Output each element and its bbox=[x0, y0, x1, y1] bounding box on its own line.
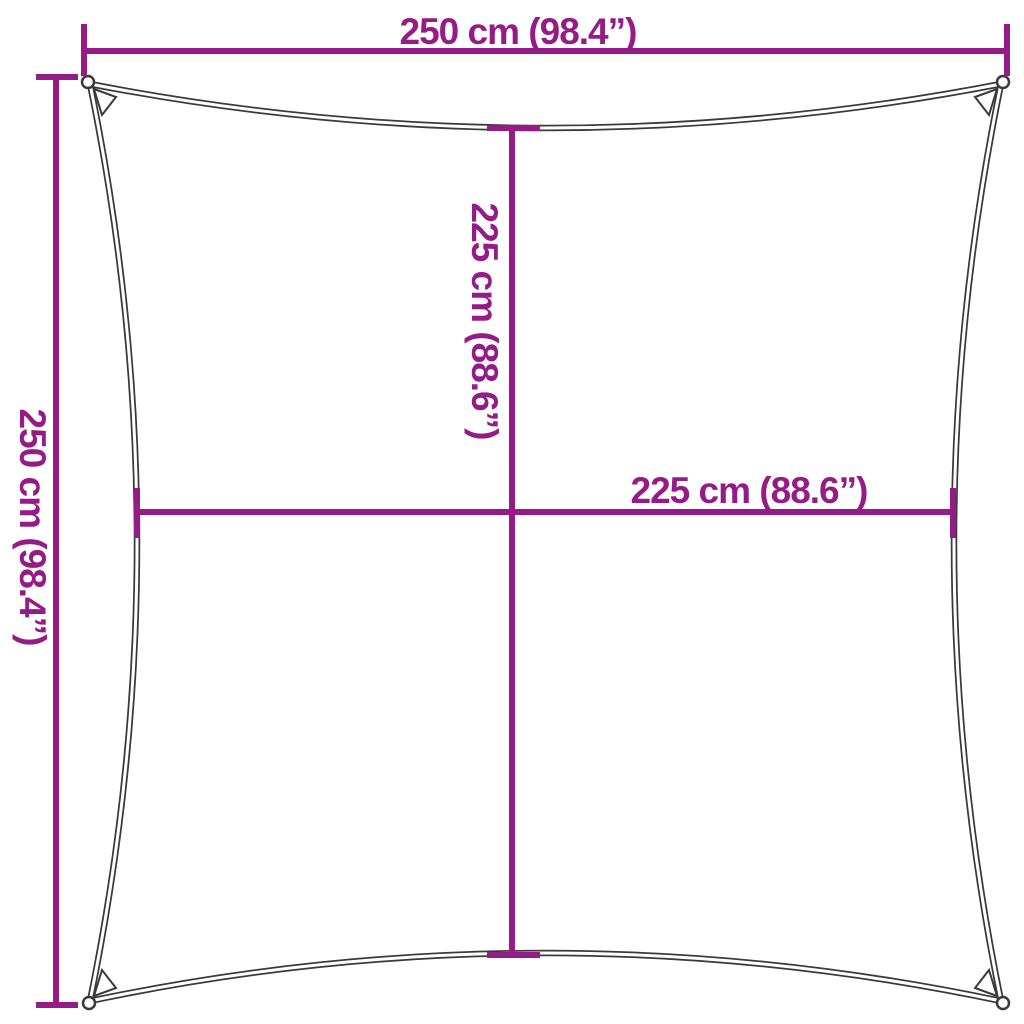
dimension-label-left: 250 cm (98.4”) bbox=[12, 409, 53, 646]
dimension-left: 250 cm (98.4”) bbox=[12, 77, 78, 1005]
shade-sail-dimension-drawing: 250 cm (98.4”) 250 cm (98.4”) 225 cm (88… bbox=[0, 0, 1024, 1024]
dimension-top: 250 cm (98.4”) bbox=[84, 11, 1007, 76]
sail-corner-patches bbox=[94, 89, 997, 996]
dimension-center-vertical: 225 cm (88.6”) bbox=[464, 128, 540, 955]
sail-corner-rings bbox=[82, 76, 1009, 1009]
dimension-center-horizontal: 225 cm (88.6”) bbox=[137, 470, 953, 538]
dimension-label-top: 250 cm (98.4”) bbox=[400, 11, 637, 52]
dimension-label-center-horizontal: 225 cm (88.6”) bbox=[631, 470, 868, 511]
dimension-diagram: 250 cm (98.4”) 250 cm (98.4”) 225 cm (88… bbox=[0, 0, 1024, 1024]
eyelet-ring-top-left-icon bbox=[82, 76, 94, 88]
sail-outline bbox=[82, 76, 1009, 1009]
eyelet-ring-bottom-left-icon bbox=[83, 997, 95, 1009]
sail-edge-inner-gap bbox=[90, 84, 1001, 1001]
eyelet-ring-top-right-icon bbox=[997, 76, 1009, 88]
sail-edge-outer bbox=[90, 84, 1001, 1001]
dimension-label-center-vertical: 225 cm (88.6”) bbox=[464, 203, 505, 440]
eyelet-ring-bottom-right-icon bbox=[997, 997, 1009, 1009]
